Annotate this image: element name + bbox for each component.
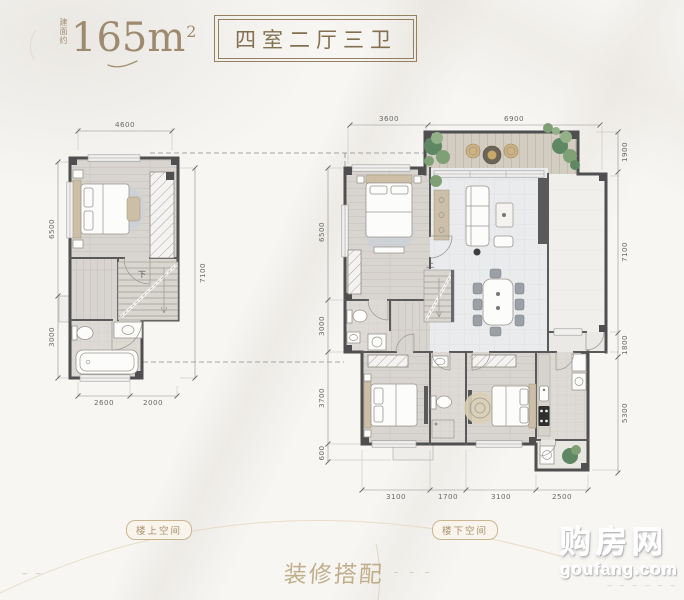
upper-floor-plan: 下 xyxy=(59,155,178,381)
floorplan-page: 建面约 165m2 四室二厅三卫 xyxy=(0,0,684,600)
dim-label: 3700 xyxy=(317,388,326,408)
tv-strip xyxy=(424,386,428,424)
upper-plan-tag: 楼上空间 xyxy=(126,520,192,540)
toilet-tank xyxy=(72,326,77,340)
toilet-tank xyxy=(347,310,352,323)
upper-plan-tag-label: 楼上空间 xyxy=(136,526,182,537)
watermark-site: goufang.com xyxy=(560,561,678,578)
lower-stair-label: 上 xyxy=(426,260,434,269)
area-prefix-label: 建面约 xyxy=(58,18,69,45)
upper-stair-label: 下 xyxy=(138,270,146,279)
rooms-label: 四室二厅三卫 xyxy=(218,19,414,59)
ottoman xyxy=(494,236,513,247)
upper-hall-floor xyxy=(70,258,118,320)
dim-label: 4600 xyxy=(115,120,135,129)
decor-text-label: 装修搭配 xyxy=(283,562,385,588)
dim-label: 1900 xyxy=(620,142,629,162)
kitchen-sink xyxy=(540,386,549,401)
toilet-icon xyxy=(353,310,367,322)
master-wardrobe xyxy=(348,250,361,294)
decor-dashes: – – – xyxy=(394,568,434,578)
toilet-icon xyxy=(437,396,452,408)
dim-label: 5300 xyxy=(620,403,629,423)
area-number: 165m xyxy=(71,15,185,61)
corner-dashes: – – xyxy=(22,568,44,578)
dim-label: 600 xyxy=(317,446,326,461)
dim-label: 6500 xyxy=(317,222,326,242)
watermark-dashes: – – – – – – xyxy=(560,582,678,590)
lower-plan-tag-label: 楼下空间 xyxy=(442,526,488,537)
wardrobe xyxy=(368,355,408,367)
dim-label: 3000 xyxy=(317,316,326,336)
gold-swoosh-icon xyxy=(106,58,140,70)
washer-icon xyxy=(368,334,386,350)
dim-label: 1800 xyxy=(620,335,629,355)
dim-label: 6900 xyxy=(504,114,524,123)
floor-lamp-icon xyxy=(474,249,481,256)
area-superscript: 2 xyxy=(186,22,196,41)
toilet-tank xyxy=(431,396,436,409)
wall-niche xyxy=(59,296,69,322)
dim-label: 2600 xyxy=(94,398,114,407)
area-value: 165m2 xyxy=(71,10,196,60)
lower-plan-tag: 楼下空间 xyxy=(432,520,498,540)
dim-label: 6500 xyxy=(47,219,56,239)
header: 建面约 165m2 四室二厅三卫 xyxy=(58,10,417,62)
watermark: 购房网 goufang.com – – – – – – xyxy=(560,527,678,590)
fridge-icon xyxy=(572,354,586,371)
oven-icon xyxy=(572,373,586,390)
dim-label: 7100 xyxy=(198,263,207,283)
lower-floor-plan: 上 xyxy=(342,123,606,470)
bathtub-icon xyxy=(76,350,138,374)
dim-label: 3000 xyxy=(47,327,56,347)
round-rug xyxy=(464,392,496,424)
upper-armchair xyxy=(127,197,140,221)
dim-label: 2000 xyxy=(143,398,163,407)
patio-floor xyxy=(548,174,606,332)
sofa xyxy=(466,186,489,246)
rooms-box: 四室二厅三卫 xyxy=(214,15,417,62)
watermark-brand: 购房网 xyxy=(560,527,678,558)
dim-label: 3600 xyxy=(379,114,399,123)
washer-icon xyxy=(540,446,554,464)
toilet-icon xyxy=(77,327,93,340)
dim-label: 3100 xyxy=(491,492,511,501)
plant-icon xyxy=(430,175,442,187)
dim-label: 7100 xyxy=(620,242,629,262)
cooktop-icon xyxy=(539,406,550,426)
dim-label: 1700 xyxy=(438,492,458,501)
upper-wardrobe xyxy=(150,172,174,258)
dim-label: 2500 xyxy=(552,492,572,501)
sink xyxy=(347,332,360,343)
dim-label: 3100 xyxy=(386,492,406,501)
floorplan-canvas: 下 4 xyxy=(0,0,684,600)
tv-cabinet xyxy=(538,178,547,244)
dining-table xyxy=(483,279,513,325)
wardrobe xyxy=(472,355,516,367)
decor-text: 装修搭配– – – xyxy=(283,555,435,589)
